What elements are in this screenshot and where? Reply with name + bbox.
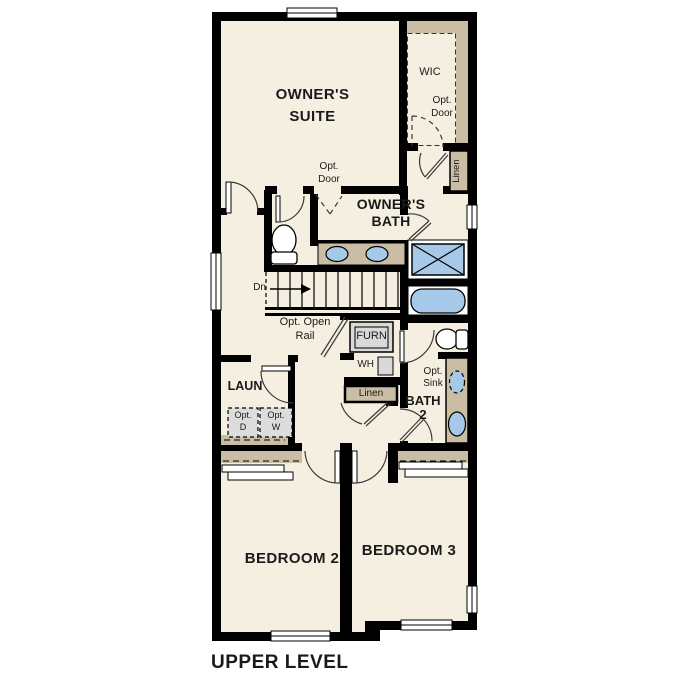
wic-label: WIC: [401, 66, 459, 80]
linen-closet-label: Linen: [451, 151, 467, 191]
opt-door-suite-label: Opt. Door: [299, 161, 359, 186]
bedroom3-closet-shelf: [398, 451, 468, 463]
water-heater-label: WH: [348, 359, 374, 372]
owners-bath-vanity: [318, 243, 405, 265]
opt-dryer-label: Opt. D: [228, 409, 258, 433]
window: [271, 631, 330, 641]
sink-icon: [366, 247, 388, 262]
linen-hall-label: Linen: [345, 388, 397, 401]
furnace-label: FURN: [350, 330, 393, 344]
stair-dn-label: Dn: [240, 282, 266, 295]
laundry-label: LAUN: [217, 379, 273, 395]
opt-open-rail-label: Opt. Open Rail: [246, 315, 364, 343]
floor-plan: OWNER'S SUITE WIC Opt. Door Linen Opt. D…: [0, 0, 687, 687]
window: [401, 620, 452, 630]
toilet-icon: [271, 225, 297, 264]
owners-bath-label: OWNER'S BATH: [321, 196, 461, 230]
shower-icon: [408, 240, 468, 279]
bath2-label: BATH 2: [393, 394, 453, 422]
window: [467, 205, 477, 229]
bedroom3-label: BEDROOM 3: [342, 540, 476, 562]
opt-door-wic-label: Opt. Door: [412, 95, 472, 120]
bedroom3-closet-doors: [399, 462, 468, 477]
bedroom2-closet-shelf: [221, 451, 302, 463]
owners-suite-label: OWNER'S SUITE: [230, 84, 395, 128]
water-heater-box: [378, 357, 393, 375]
window: [211, 253, 221, 310]
window: [287, 8, 337, 18]
opt-washer-label: Opt. W: [260, 409, 292, 433]
bedroom2-closet-doors: [222, 465, 293, 480]
opt-sink-label: Opt. Sink: [403, 366, 463, 390]
sink-icon: [326, 247, 348, 262]
window: [467, 586, 477, 613]
page-title: UPPER LEVEL: [211, 651, 348, 675]
toilet-icon: [436, 329, 468, 349]
bathtub-icon: [408, 286, 468, 315]
bedroom2-label: BEDROOM 2: [222, 548, 362, 570]
